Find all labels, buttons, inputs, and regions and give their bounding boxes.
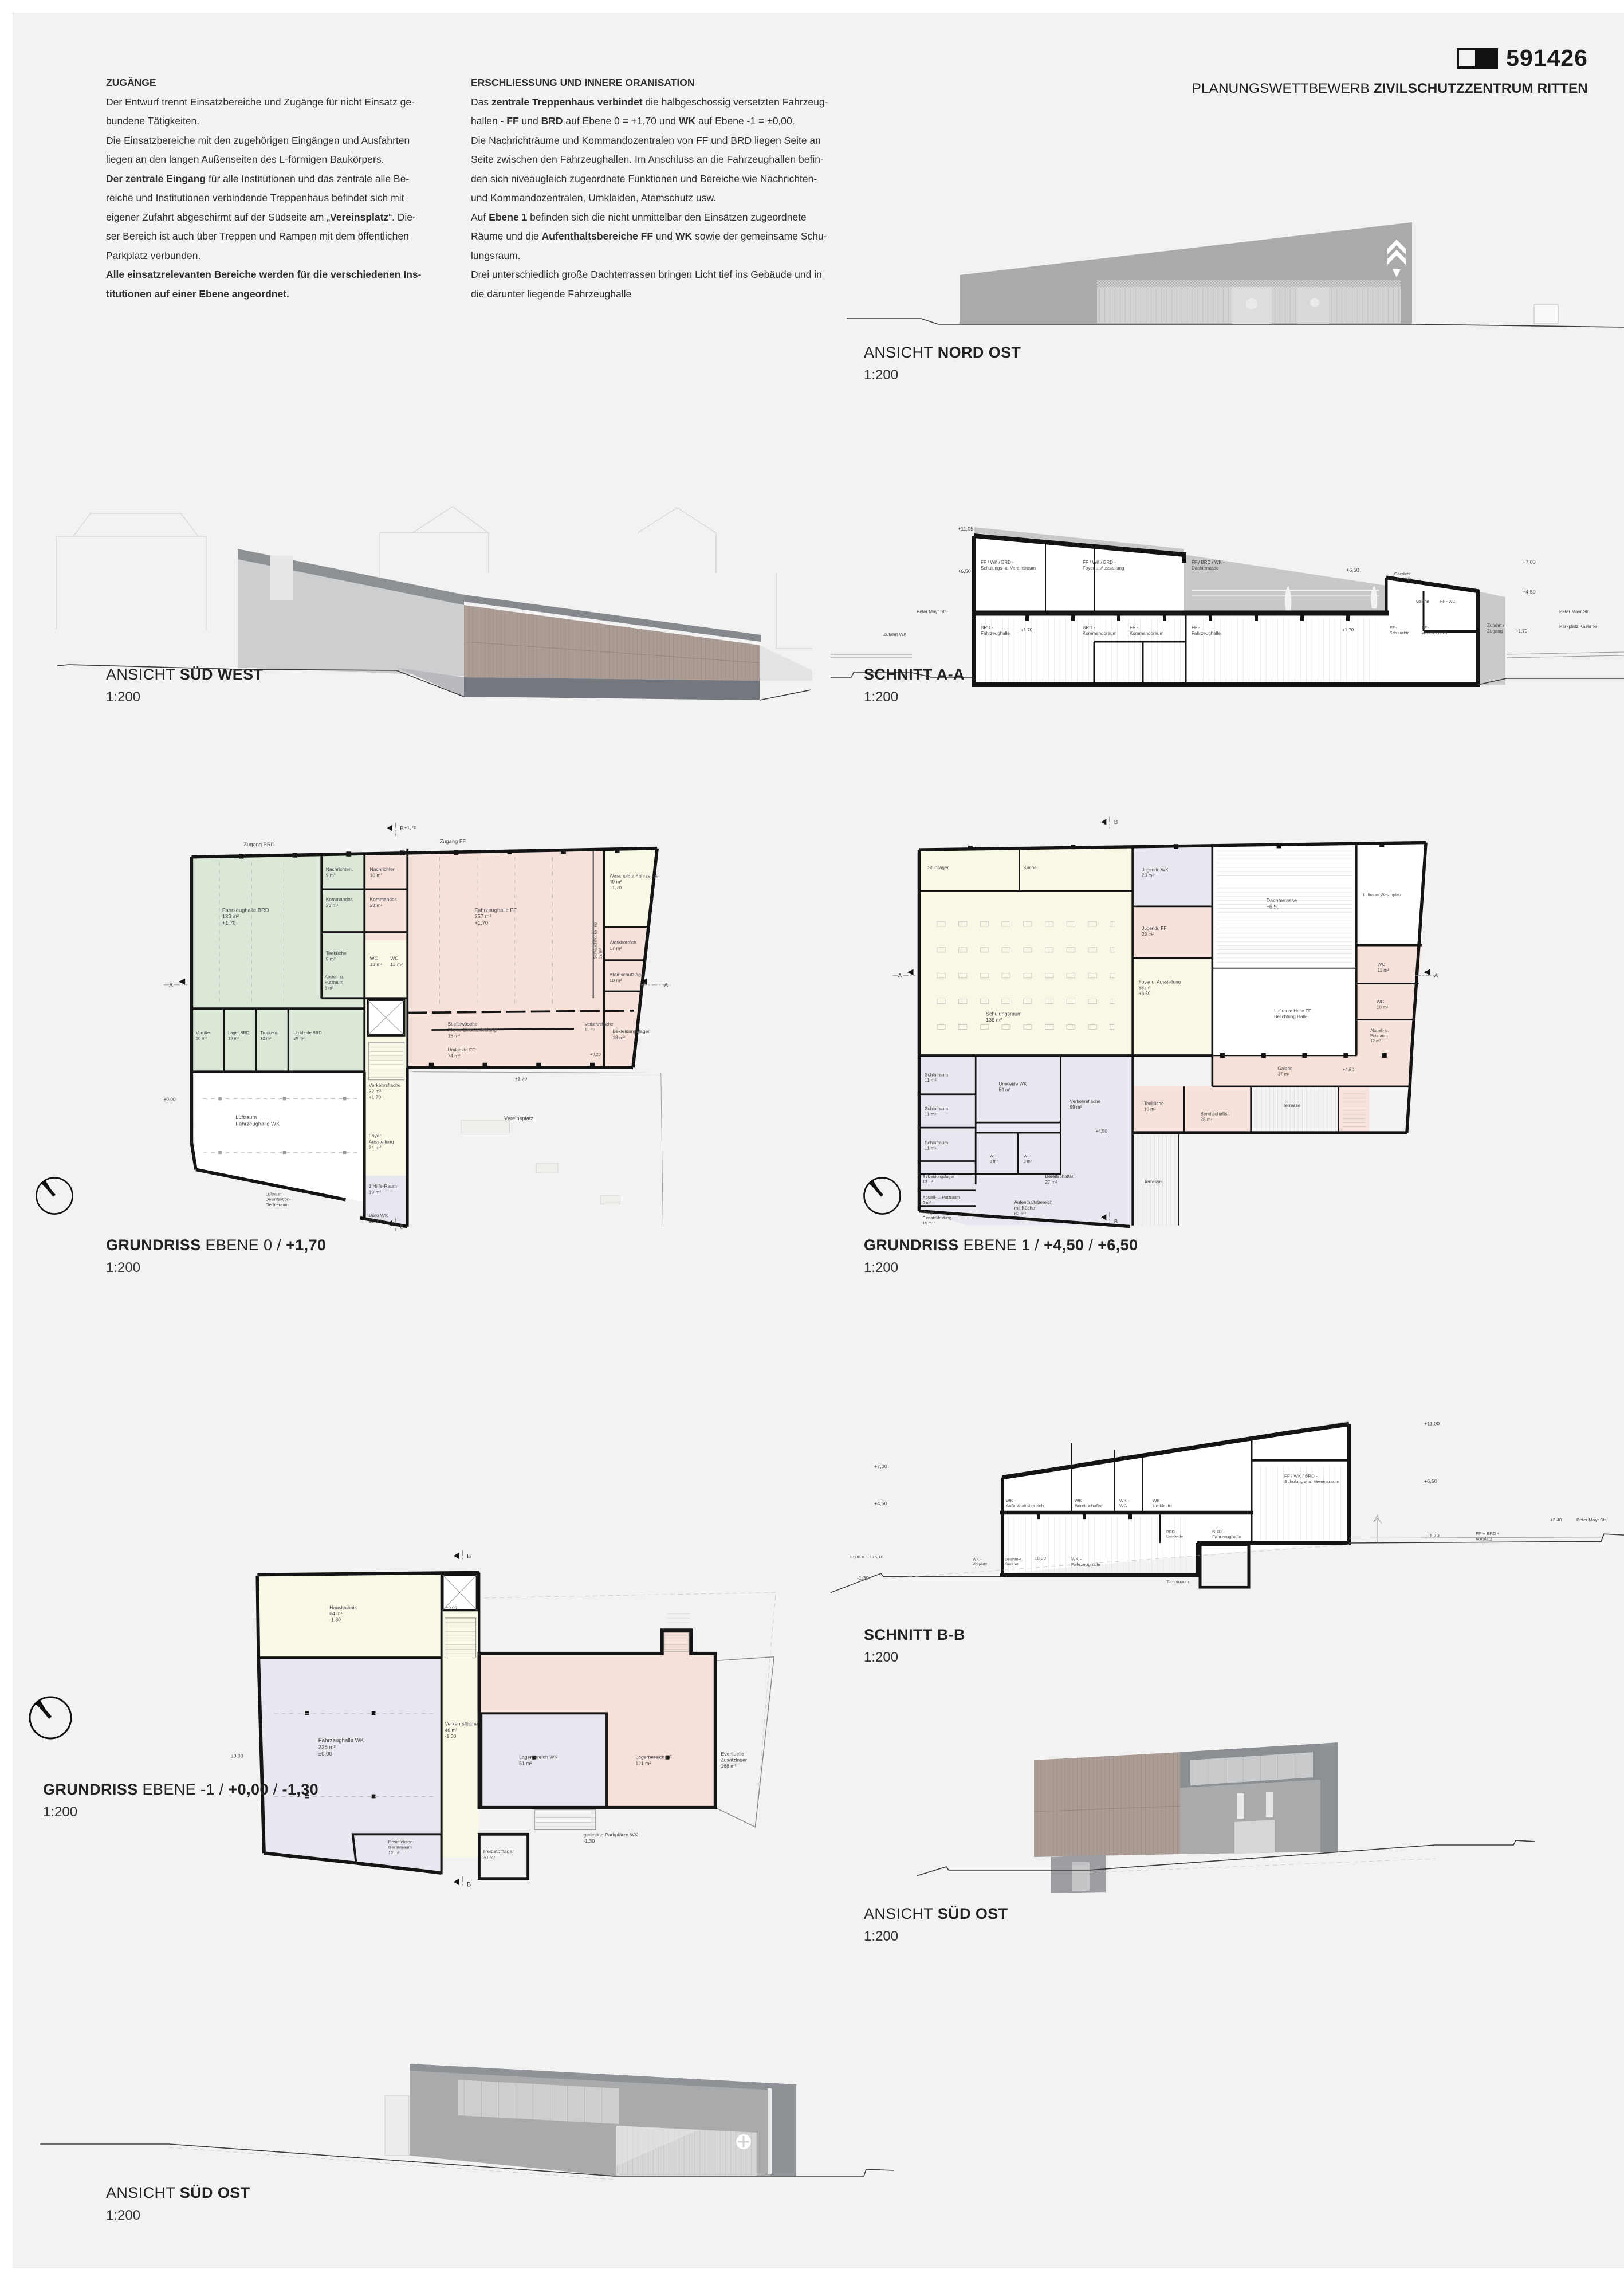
text-line: titutionen auf einer Ebene angeordnet. — [106, 285, 375, 304]
text-line: liegen an den langen Außenseiten des L-f… — [106, 150, 375, 170]
drawing-label: Luftraum Waschplatz — [1363, 893, 1402, 897]
drawing-label: Terrasse — [1144, 1179, 1162, 1184]
text-line: Die Einsatzbereiche mit den zugehörigen … — [106, 131, 375, 151]
text-line: Seite zwischen den Fahrzeughallen. Im An… — [471, 150, 780, 170]
caption-grundriss-ebene0: GRUNDRISS EBENE 0 / +1,70 1:200 — [106, 1236, 326, 1276]
drawing-label: Zufahrt WK — [883, 632, 907, 637]
weisses-kreuz-cross-icon — [736, 2134, 751, 2149]
text-line: ZUGÄNGE — [106, 73, 375, 93]
north-arrow-icon — [34, 1176, 74, 1216]
text-line: ERSCHLIESSUNG UND INNERE ORANISATION — [471, 73, 780, 93]
drawing-label: -1,30 — [857, 1576, 869, 1581]
drawing-label: +1,70 — [1516, 629, 1528, 634]
drawing-label: B — [467, 1553, 471, 1560]
drawing-label: +11,05 — [958, 526, 973, 532]
drawing-label: +6,50 — [1346, 567, 1359, 573]
grundriss-ebene-minus1-drawing: Haustechnik64 m²-1,30±0,00Verkehrsfläche… — [223, 1547, 785, 1891]
drawing-label: Terrasse — [1283, 1103, 1300, 1108]
drawing-label: B — [400, 826, 404, 832]
north-arrow-icon — [27, 1695, 73, 1741]
drawing-label: B — [467, 1881, 471, 1888]
drawing-label: Vereinsplatz — [504, 1116, 533, 1121]
text-line: Parkplatz verbunden. — [106, 246, 375, 266]
north-arrow-icon — [862, 1176, 902, 1216]
drawing-label: +1,70 — [515, 1076, 528, 1082]
caption-ansicht-sued-ost-1: ANSICHT SÜD OST 1:200 — [864, 1905, 1008, 1945]
grundriss-ebene1-drawing: StuhllagerKücheJugendr. WK23 m²Jugendr. … — [891, 814, 1446, 1226]
grundriss-ebene0-drawing: Zugang BRDZugang FFFahrzeughalle BRD138 … — [160, 819, 676, 1233]
text-line: hallen - FF und BRD auf Ebene 0 = +1,70 … — [471, 112, 780, 131]
caption-ansicht-nord-ost: ANSICHT NORD OST 1:200 — [864, 344, 1021, 383]
drawing-label: +4,50 — [1343, 1067, 1355, 1072]
drawing-label: +1,70 — [404, 825, 417, 830]
caption-grundriss-ebene1: GRUNDRISS EBENE 1 / +4,50 / +6,50 1:200 — [864, 1236, 1138, 1276]
drawing-label: Zugang BRD — [243, 842, 274, 847]
text-line: bundene Tätigkeiten. — [106, 112, 375, 131]
drawing-label: Stuhllager — [928, 865, 949, 870]
entry-number: 591426 — [1506, 45, 1588, 72]
drawing-label: Parkplatz Kaserne — [1559, 624, 1597, 629]
caption-schnitt-aa: SCHNITT A-A 1:200 — [864, 666, 965, 705]
drawing-label: +4,50 — [1523, 589, 1536, 595]
drawing-label: FF - WC — [1440, 600, 1455, 604]
competition-title: PLANUNGSWETTBEWERB ZIVILSCHUTZZENTRUM RI… — [1192, 81, 1588, 97]
drawing-label: +4,50 — [1095, 1129, 1107, 1134]
text-line: eigener Zufahrt abgeschirmt auf der Süds… — [106, 208, 375, 227]
competition-board: { "colors":{ "paper":"#ffffff","board":"… — [0, 0, 1624, 2285]
drawing-label: A — [169, 983, 173, 989]
competition-code: 591426 — [1192, 45, 1588, 72]
entry-logo-icon — [1457, 48, 1498, 69]
drawing-label: ±0,00 — [231, 1753, 243, 1759]
drawing-label: ±0,00 — [446, 1605, 457, 1610]
drawing-label: Peter Mayr Str. — [1576, 1517, 1607, 1522]
drawing-label: gedeckte Parkplätze WK-1,30 — [583, 1832, 638, 1844]
text-line: Die Nachrichträume und Kommandozentralen… — [471, 131, 780, 151]
ansicht-sued-west-drawing — [11, 498, 813, 688]
drawing-label: A — [1434, 973, 1438, 979]
drawing-label: +3,40 — [1550, 1517, 1562, 1522]
drawing-label: WK -Vorplatz — [973, 1558, 988, 1566]
drawing-label: +11,00 — [1424, 1421, 1440, 1427]
text-line: reiche und Institutionen verbindende Tre… — [106, 189, 375, 208]
text-block-zugaenge: ZUGÄNGEDer Entwurf trennt Einsatzbereich… — [106, 73, 375, 304]
schnitt-aa-drawing: +11,05+6,50+7,00+4,50+6,50FF / WK / BRD … — [831, 504, 1624, 693]
caption-grundriss-ebene-minus1: GRUNDRISS EBENE -1 / +0,00 / -1,30 1:200 — [43, 1781, 318, 1820]
drawing-label: +6,50 — [958, 568, 971, 574]
drawing-label: Küche — [1024, 865, 1037, 870]
text-line: Räume und die Aufenthaltsbereiche FF und… — [471, 227, 780, 246]
ansicht-sued-ost-1-drawing — [917, 1725, 1535, 1897]
header: 591426 PLANUNGSWETTBEWERB ZIVILSCHUTZZEN… — [1192, 45, 1588, 97]
drawing-label: Treibstofflager20 m² — [482, 1848, 514, 1860]
text-line: Der zentrale Eingang für alle Institutio… — [106, 170, 375, 189]
drawing-label: B — [1114, 1219, 1118, 1225]
drawing-label: ±0,00 — [164, 1096, 176, 1102]
drawing-label: Peter Mayr Str. — [1559, 609, 1590, 614]
text-line: Auf Ebene 1 befinden sich die nicht unmi… — [471, 208, 780, 227]
drawing-label: EventuelleZusatzlager168 m² — [721, 1751, 746, 1769]
drawing-label: Zufahrt /Zugang — [1487, 623, 1505, 634]
drawing-label: LuftraumDesinfektion-Geräteraum — [266, 1191, 291, 1207]
schnitt-bb-drawing: +7,00+4,50±0,00 = 1.176,10-1,30+11,00+6,… — [831, 1375, 1624, 1604]
drawing-label: B — [1114, 819, 1118, 826]
drawing-label: Peter Mayr Str. — [917, 609, 947, 614]
text-block-erschliessung: ERSCHLIESSUNG UND INNERE ORANISATIONDas … — [471, 73, 780, 304]
text-line: Das zentrale Treppenhaus verbindet die h… — [471, 93, 780, 112]
drawing-label: +4,50 — [874, 1501, 887, 1506]
drawing-label: +7,00 — [1523, 559, 1536, 565]
drawing-label: Technikraum — [1166, 1580, 1189, 1584]
drawing-label: +6,50 — [1424, 1478, 1437, 1484]
text-line: den sich niveaugleich zugeordnete Funkti… — [471, 170, 780, 189]
drawing-label: +1,70 — [1021, 627, 1033, 633]
text-line: ser Bereich ist auch über Treppen und Ra… — [106, 227, 375, 246]
drawing-label: Zugang FF — [440, 838, 466, 844]
text-line: Der Entwurf trennt Einsatzbereiche und Z… — [106, 93, 375, 112]
drawing-label: +1,70 — [1426, 1533, 1440, 1538]
drawing-label: B — [400, 1224, 404, 1230]
drawing-label: A — [664, 983, 668, 989]
caption-schnitt-bb: SCHNITT B-B 1:200 — [864, 1626, 965, 1666]
drawing-label: ±0,00 — [1035, 1556, 1046, 1561]
drawing-label: +1,70 — [1342, 627, 1354, 633]
text-line: Alle einsatzrelevanten Bereiche werden f… — [106, 265, 375, 285]
text-line: die darunter liegende Fahrzeughalle — [471, 285, 780, 304]
caption-ansicht-sued-ost-2: ANSICHT SÜD OST 1:200 — [106, 2184, 250, 2224]
drawing-label: Luftraum Halle FFBelichtung Halle — [1274, 1008, 1311, 1019]
drawing-label: ±0,00 = 1.176,10 — [849, 1554, 883, 1560]
drawing-label: Galerie — [1416, 600, 1429, 604]
drawing-label: +7,00 — [874, 1463, 887, 1469]
drawing-label: +0,20 — [590, 1052, 601, 1057]
drawing-label: OberlichtFF - Halle — [1394, 572, 1412, 582]
drawing-label: A — [898, 973, 902, 979]
drawing-label: FF + BRD -Vorplatz — [1476, 1531, 1499, 1541]
text-line: Drei unterschiedlich große Dachterrassen… — [471, 265, 780, 285]
text-line: und Kommandozentralen, Umkleiden, Atemsc… — [471, 189, 780, 208]
text-line: lungsraum. — [471, 246, 780, 266]
caption-ansicht-sued-west: ANSICHT SÜD WEST 1:200 — [106, 666, 263, 705]
